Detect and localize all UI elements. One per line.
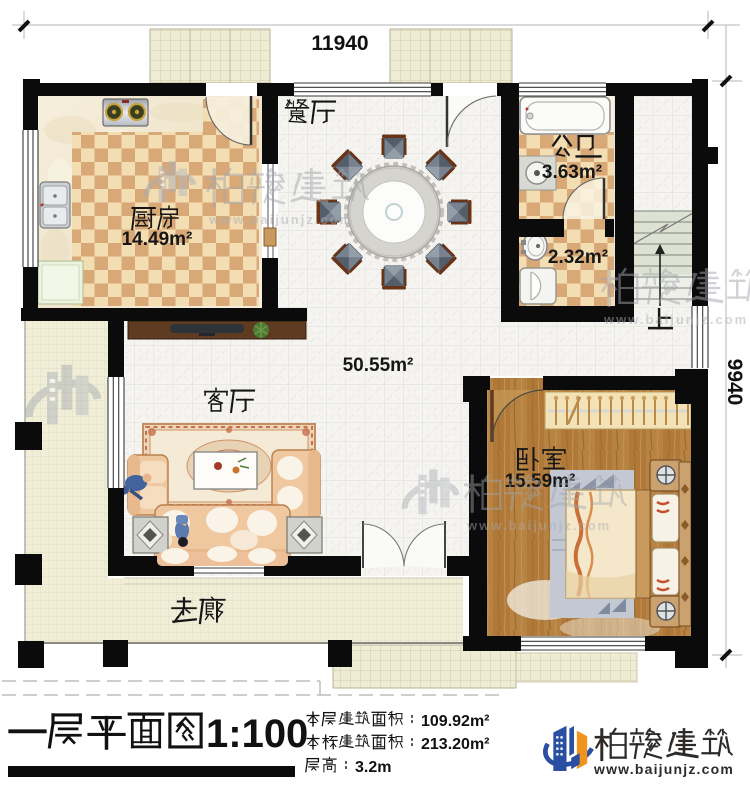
svg-text:www.baijunjz.com: www.baijunjz.com (208, 212, 353, 227)
svg-text:9940: 9940 (723, 359, 746, 406)
svg-text:3.2m: 3.2m (355, 759, 391, 776)
svg-text:www.baijunjz.com: www.baijunjz.com (466, 518, 611, 533)
svg-text:14.49m²: 14.49m² (122, 229, 193, 250)
svg-text:1:100: 1:100 (206, 712, 308, 756)
svg-text:213.20m²: 213.20m² (421, 736, 490, 753)
svg-text:50.55m²: 50.55m² (343, 355, 414, 376)
svg-text:www.baijunjz.com: www.baijunjz.com (603, 312, 748, 327)
svg-text:109.92m²: 109.92m² (421, 713, 490, 730)
svg-text:2.32m²: 2.32m² (548, 247, 608, 268)
svg-text:www.baijunjz.com: www.baijunjz.com (593, 761, 734, 777)
svg-text:11940: 11940 (311, 32, 368, 55)
